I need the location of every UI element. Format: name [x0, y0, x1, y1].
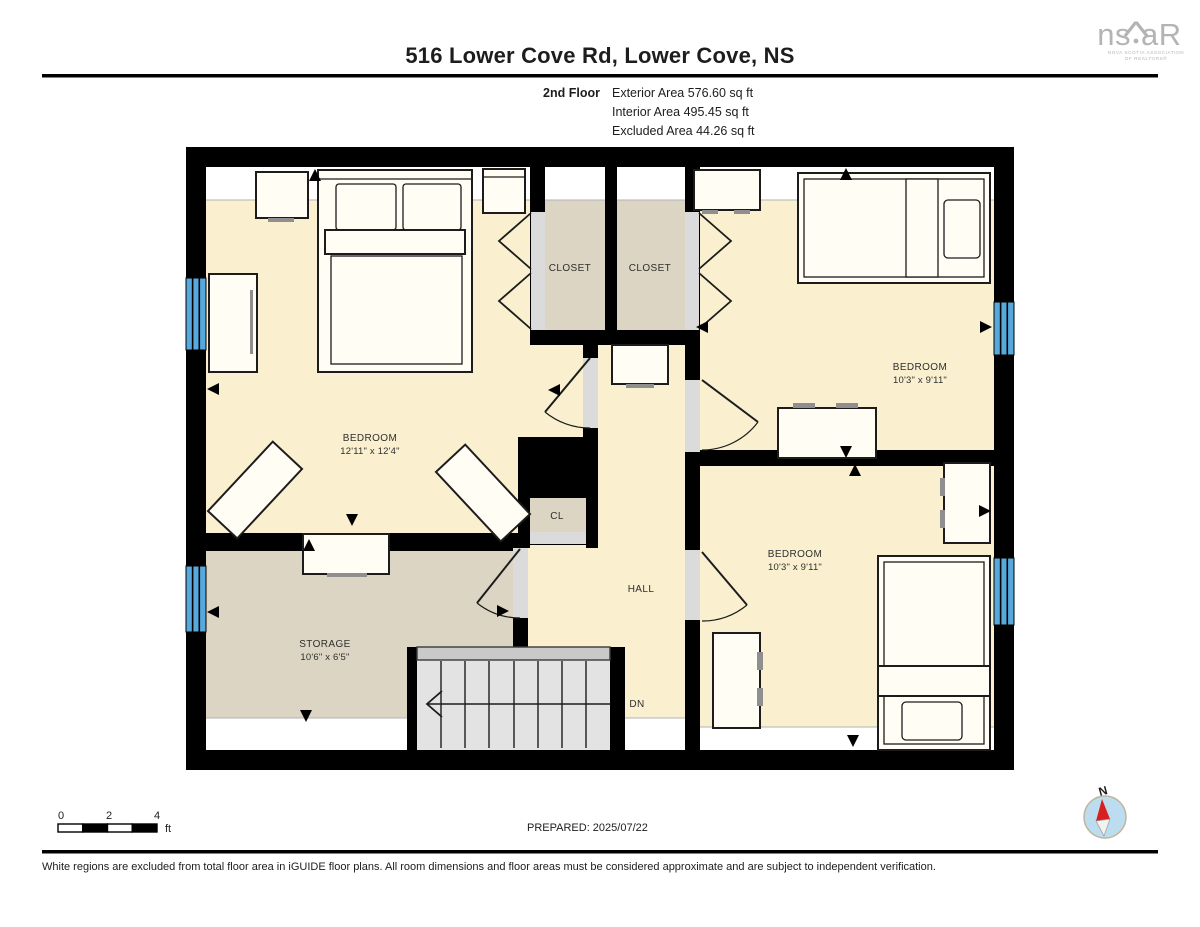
bedroom-left-dims: 12'11" x 12'4"	[340, 446, 399, 457]
dresser	[612, 345, 668, 388]
scale-0: 0	[58, 810, 64, 822]
window	[186, 278, 206, 350]
bedroom-bottom-right-dims: 10'3" x 9'11"	[768, 562, 822, 573]
window	[186, 566, 206, 632]
window	[994, 558, 1014, 625]
nightstand	[940, 463, 990, 543]
dresser	[713, 633, 763, 728]
floor-label: 2nd Floor	[543, 86, 600, 100]
disclaimer: White regions are excluded from total fl…	[42, 861, 936, 873]
scale-2: 2	[106, 810, 112, 822]
stairs	[417, 647, 610, 750]
nsar-logo: ns aR NOVA SCOTIA ASSOCIATION OF REALTOR…	[1097, 17, 1184, 61]
nightstand	[256, 172, 308, 222]
floor-plan-canvas: 516 Lower Cove Rd, Lower Cove, NS 2nd Fl…	[0, 0, 1200, 927]
compass: N	[1084, 783, 1126, 838]
dresser	[778, 403, 876, 458]
interior-area: Interior Area 495.45 sq ft	[612, 105, 749, 119]
logo-caption-2: OF REALTORS®	[1125, 55, 1168, 61]
bedroom-bottom-right-label: BEDROOM	[768, 549, 822, 560]
header-rule	[42, 74, 1158, 78]
storage-dims: 10'6" x 6'5"	[300, 652, 349, 663]
bedroom-top-right-dims: 10'3" x 9'11"	[893, 375, 947, 386]
storage-label: STORAGE	[299, 639, 351, 650]
bed-double	[318, 170, 472, 372]
closet-right-label: CLOSET	[629, 263, 671, 274]
prepared-date: PREPARED: 2025/07/22	[527, 822, 648, 834]
cl-label: CL	[550, 511, 564, 522]
header: 516 Lower Cove Rd, Lower Cove, NS 2nd Fl…	[42, 43, 1158, 138]
bed-single	[798, 173, 990, 283]
logo-caption-1: NOVA SCOTIA ASSOCIATION	[1108, 50, 1184, 55]
exterior-area: Exterior Area 576.60 sq ft	[612, 86, 754, 100]
scale-4: 4	[154, 810, 160, 822]
hall-floor	[598, 345, 685, 647]
nightstand	[694, 170, 760, 214]
bedroom-left-label: BEDROOM	[343, 433, 397, 444]
hall-label: HALL	[628, 584, 655, 595]
scale-bar: 0 2 4 ft	[58, 810, 171, 835]
scale-unit: ft	[165, 823, 171, 835]
stair-rail	[417, 647, 610, 660]
dresser	[303, 534, 389, 577]
floor-plan-page: 516 Lower Cove Rd, Lower Cove, NS 2nd Fl…	[0, 0, 1200, 927]
excluded-area: Excluded Area 44.26 sq ft	[612, 124, 755, 138]
shelf	[483, 169, 525, 213]
dresser	[209, 274, 257, 372]
page-title: 516 Lower Cove Rd, Lower Cove, NS	[405, 43, 794, 68]
dn-label: DN	[629, 699, 644, 710]
closet-left-label: CLOSET	[549, 263, 591, 274]
bedroom-top-right-label: BEDROOM	[893, 362, 947, 373]
bed-single	[878, 556, 990, 750]
footer-rule	[42, 850, 1158, 854]
window	[994, 302, 1014, 355]
logo-roof-dot	[1134, 39, 1139, 44]
logo-ar: aR	[1141, 17, 1182, 52]
